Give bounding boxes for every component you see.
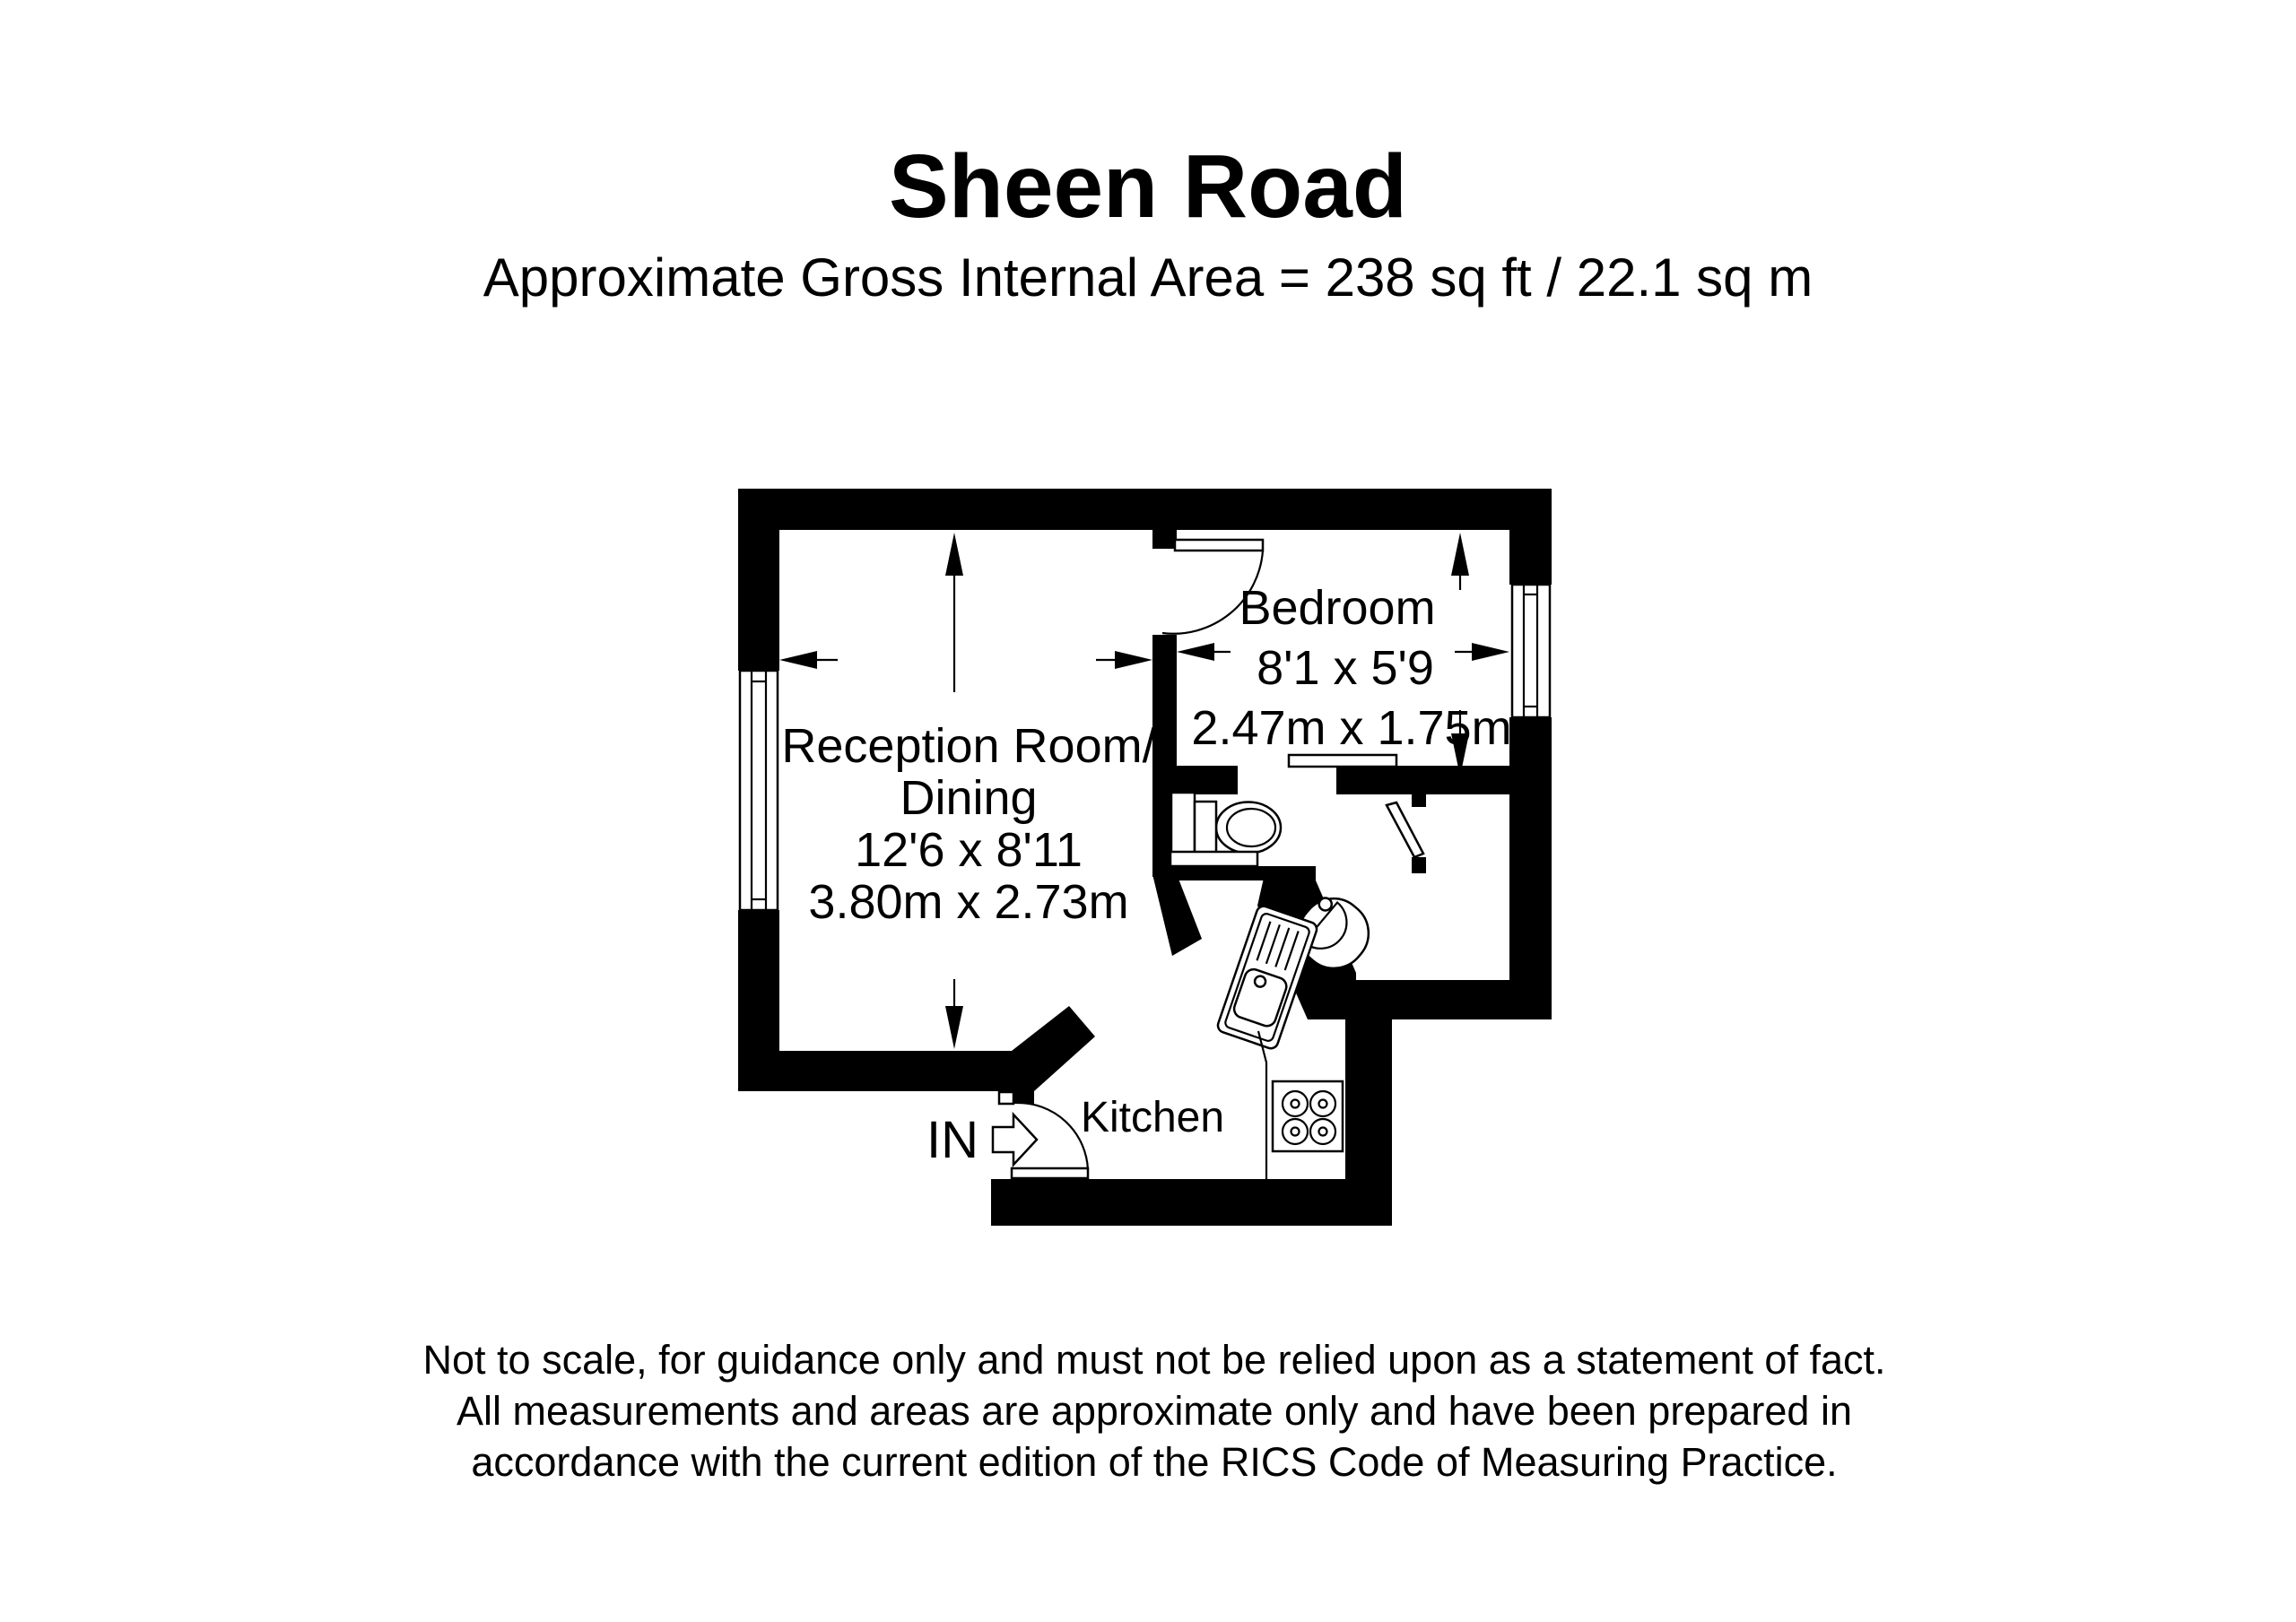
entrance-label: IN	[926, 1111, 978, 1169]
door-jamb-plate	[999, 1092, 1013, 1104]
reception-window	[740, 671, 778, 910]
arrow-up-icon	[945, 533, 963, 576]
entry-arrow-icon	[993, 1115, 1037, 1165]
hob	[1273, 1081, 1343, 1151]
top-wall	[738, 489, 1552, 530]
arrow-down-icon	[945, 1006, 963, 1049]
floorplan-page: Sheen Road Approximate Gross Internal Ar…	[0, 0, 2296, 1622]
bedroom-size-metric: 2.47m x 1.75m	[1191, 701, 1511, 755]
kitchen-counter-edge	[1258, 1031, 1266, 1181]
reception-name-line1: Reception Room/	[781, 719, 1155, 773]
bedroom-name: Bedroom	[1239, 581, 1435, 635]
bathroom-top-wall-left	[1152, 766, 1238, 794]
arrow-right-icon	[1115, 651, 1152, 669]
door-leaf	[1012, 1168, 1088, 1178]
toilet	[1170, 793, 1281, 866]
disclaimer-line3: accordance with the current edition of t…	[471, 1439, 1837, 1485]
cupboard-door	[1387, 802, 1423, 857]
bathroom-sliding-door	[1289, 755, 1396, 767]
reception-width-dimension	[779, 651, 1152, 669]
door-leaf	[1387, 802, 1423, 857]
arrow-up-icon	[1451, 533, 1469, 576]
right-wall-upper	[1509, 489, 1552, 585]
toilet-backplate	[1171, 793, 1195, 861]
partition-diagonal-end	[1152, 874, 1202, 956]
window-frame	[1512, 585, 1550, 717]
page-title: Sheen Road	[889, 136, 1407, 237]
header: Sheen Road Approximate Gross Internal Ar…	[483, 136, 1813, 308]
disclaimer-line2: All measurements and areas are approxima…	[457, 1388, 1852, 1434]
kitchen-right-wall	[1345, 1019, 1392, 1181]
reception-size-imperial: 12'6 x 8'11	[855, 823, 1083, 877]
cupboard-door-jamb-bottom	[1412, 857, 1426, 873]
door-leaf	[1175, 540, 1263, 551]
floorplan: Reception Room/ Dining 12'6 x 8'11 3.80m…	[738, 489, 1552, 1226]
reception-size-metric: 3.80m x 2.73m	[808, 875, 1128, 929]
partition-top-stub	[1152, 530, 1177, 549]
cupboard-door-jamb-top	[1412, 794, 1426, 807]
disclaimer-line1: Not to scale, for guidance only and must…	[423, 1337, 1886, 1383]
arrow-left-icon	[779, 651, 817, 669]
footer-disclaimer: Not to scale, for guidance only and must…	[423, 1337, 1886, 1485]
arrow-left-icon	[1177, 643, 1214, 661]
toilet-cistern	[1195, 802, 1216, 854]
reception-name-line2: Dining	[900, 771, 1037, 825]
sliding-door-leaf	[1289, 755, 1396, 767]
toilet-shelf	[1170, 852, 1257, 866]
right-wall-lower	[1509, 717, 1552, 980]
reception-bottom-wall	[738, 1051, 1034, 1091]
bedroom-size-imperial: 8'1 x 5'9	[1257, 641, 1434, 695]
bathroom-bottom-wall	[1343, 980, 1552, 1019]
window-frame	[740, 671, 778, 910]
page-subtitle: Approximate Gross Internal Area = 238 sq…	[483, 247, 1813, 308]
bedroom-bottom-wall	[1336, 766, 1552, 794]
left-wall-upper	[738, 489, 779, 671]
bedroom-window	[1512, 585, 1550, 717]
arrow-right-icon	[1472, 643, 1509, 661]
kitchen-name: Kitchen	[1081, 1094, 1224, 1141]
kitchen-bottom-wall	[991, 1179, 1392, 1226]
